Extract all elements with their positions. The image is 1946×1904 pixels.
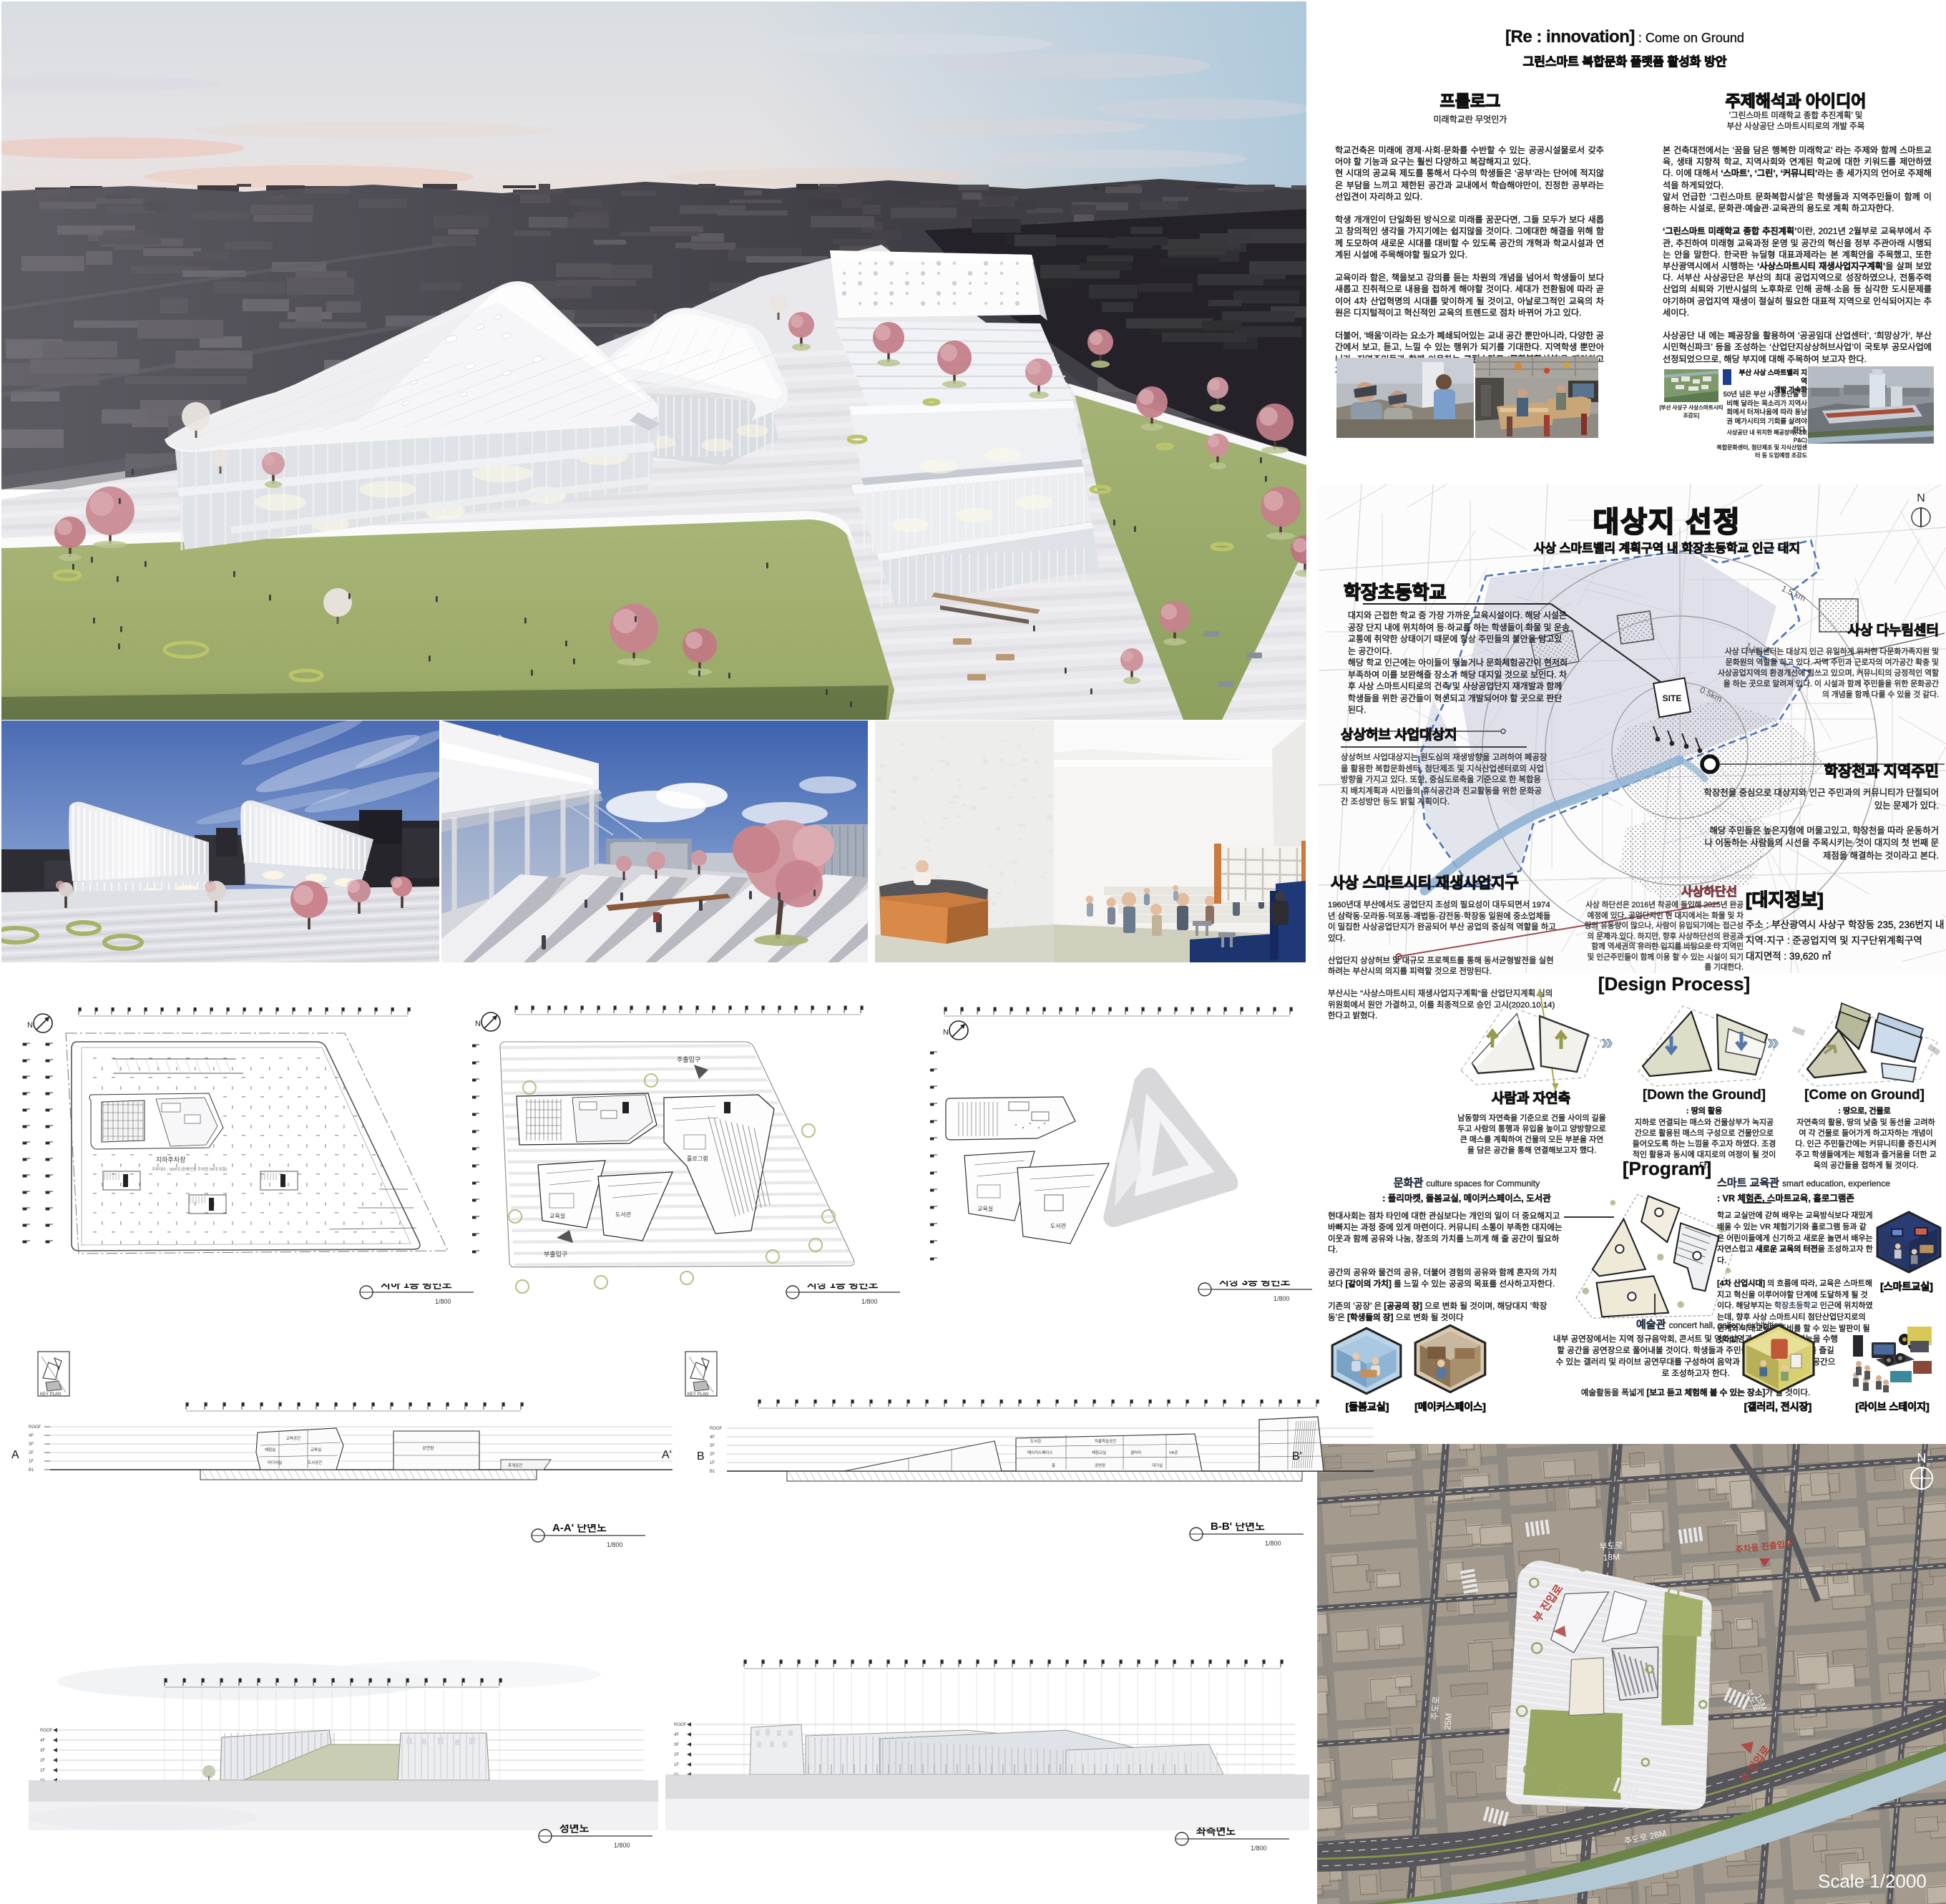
svg-text:N: N	[27, 1021, 33, 1030]
svg-text:미디어실: 미디어실	[268, 1460, 282, 1465]
svg-text:1/800: 1/800	[861, 1298, 878, 1305]
svg-text:1/800: 1/800	[1273, 1295, 1290, 1302]
svg-text:자율학습공간: 자율학습공간	[1095, 1438, 1116, 1444]
svg-text:3F: 3F	[29, 1442, 34, 1447]
svg-text:KEY PLAN: KEY PLAN	[688, 1392, 708, 1397]
svg-text:Scale 1/2000: Scale 1/2000	[1818, 1870, 1927, 1892]
svg-text:1F: 1F	[710, 1461, 715, 1465]
svg-text:메이커스페이스: 메이커스페이스	[1027, 1450, 1052, 1455]
svg-text:공연장: 공연장	[1095, 1463, 1105, 1468]
svg-text:체험실: 체험실	[265, 1447, 275, 1453]
svg-text:2F: 2F	[40, 1759, 45, 1763]
svg-text:교육실: 교육실	[977, 1205, 993, 1212]
svg-text:2F: 2F	[29, 1451, 34, 1455]
svg-text:N: N	[1917, 1451, 1927, 1465]
svg-text:3F: 3F	[40, 1749, 45, 1753]
svg-text:도서관: 도서관	[1030, 1438, 1041, 1444]
svg-text:3F: 3F	[710, 1444, 715, 1448]
svg-text:KEY PLAN: KEY PLAN	[40, 1392, 61, 1397]
svg-text:교육공간: 교육공간	[286, 1435, 300, 1441]
svg-text:ROOF: ROOF	[40, 1729, 53, 1733]
svg-text:부출입구: 부출입구	[544, 1250, 567, 1258]
svg-text:VR존: VR존	[1169, 1450, 1178, 1455]
svg-text:B': B'	[1292, 1450, 1302, 1463]
svg-text:도서관: 도서관	[1050, 1222, 1067, 1229]
svg-text:25M: 25M	[1442, 1713, 1454, 1730]
svg-text:4F: 4F	[674, 1733, 679, 1737]
svg-text:홀로그램: 홀로그램	[687, 1155, 708, 1162]
svg-text:B: B	[697, 1450, 705, 1463]
svg-text:1/800: 1/800	[435, 1298, 451, 1305]
svg-text:A: A	[11, 1449, 19, 1461]
svg-text:대기실: 대기실	[1152, 1463, 1163, 1468]
svg-text:2F: 2F	[674, 1753, 679, 1757]
svg-text:A-A' 단면도: A-A' 단면도	[552, 1524, 607, 1534]
svg-text:휴게공간: 휴게공간	[508, 1463, 522, 1468]
svg-text:4F: 4F	[710, 1435, 715, 1440]
svg-text:지하 1층 평면도: 지하 1층 평면도	[381, 1284, 452, 1291]
svg-text:1F: 1F	[29, 1460, 34, 1464]
svg-text:도서공간: 도서공간	[308, 1460, 322, 1465]
svg-text:지상 1층 평면도: 지상 1층 평면도	[807, 1284, 879, 1291]
svg-text:1F: 1F	[40, 1769, 45, 1773]
svg-text:2F: 2F	[710, 1453, 715, 1457]
svg-text:도서관: 도서관	[615, 1211, 632, 1218]
svg-text:갤러리: 갤러리	[1130, 1450, 1141, 1455]
svg-text:B1: B1	[710, 1470, 715, 1474]
svg-text:B1: B1	[29, 1468, 34, 1473]
svg-text:주차대수 : 000대 (장애인용 주차장 00대 포함): 주차대수 : 000대 (장애인용 주차장 00대 포함)	[152, 1166, 228, 1172]
svg-text:1/800: 1/800	[1265, 1540, 1281, 1547]
svg-text:지하주차장: 지하주차장	[156, 1156, 185, 1163]
svg-text:1/800: 1/800	[1251, 1845, 1267, 1852]
svg-text:18M: 18M	[1603, 1551, 1620, 1563]
svg-text:교육실: 교육실	[311, 1447, 321, 1453]
svg-text:주도로: 주도로	[1429, 1696, 1442, 1720]
svg-text:홀: 홀	[1052, 1463, 1055, 1468]
svg-text:1/800: 1/800	[614, 1842, 630, 1849]
svg-text:ROOF: ROOF	[674, 1723, 687, 1727]
svg-text:A': A'	[662, 1449, 672, 1461]
svg-text:ROOF: ROOF	[29, 1425, 41, 1430]
svg-text:1F: 1F	[674, 1763, 679, 1767]
svg-text:4F: 4F	[29, 1434, 34, 1438]
svg-text:SITE: SITE	[1663, 693, 1682, 703]
svg-text:공연장: 공연장	[422, 1445, 434, 1451]
svg-text:N: N	[475, 1020, 481, 1028]
svg-text:주출입구: 주출입구	[677, 1055, 700, 1063]
svg-text:B-B' 단면도: B-B' 단면도	[1211, 1523, 1265, 1533]
svg-text:체험교실: 체험교실	[1092, 1450, 1106, 1455]
svg-text:ROOF: ROOF	[710, 1427, 723, 1431]
svg-text:N: N	[1917, 492, 1925, 504]
svg-text:지상 3층 평면도: 지상 3층 평면도	[1219, 1281, 1291, 1288]
svg-text:3F: 3F	[674, 1743, 679, 1747]
svg-text:N: N	[943, 1028, 949, 1037]
svg-text:4F: 4F	[40, 1739, 45, 1743]
svg-text:교육실: 교육실	[549, 1212, 565, 1219]
svg-text:좌측면도: 좌측면도	[1196, 1827, 1236, 1837]
svg-text:부도로: 부도로	[1599, 1541, 1623, 1552]
svg-text:1/800: 1/800	[607, 1541, 623, 1548]
svg-text:정면도: 정면도	[559, 1825, 590, 1835]
